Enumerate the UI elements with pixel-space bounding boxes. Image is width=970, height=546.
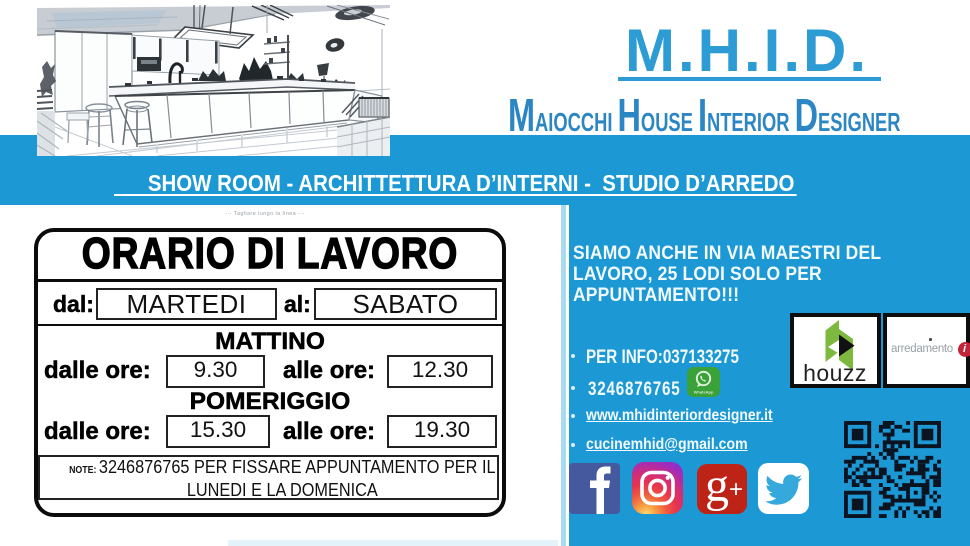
svg-text:WhatsApp: WhatsApp: [694, 390, 714, 395]
svg-text:houzz: houzz: [803, 360, 867, 384]
